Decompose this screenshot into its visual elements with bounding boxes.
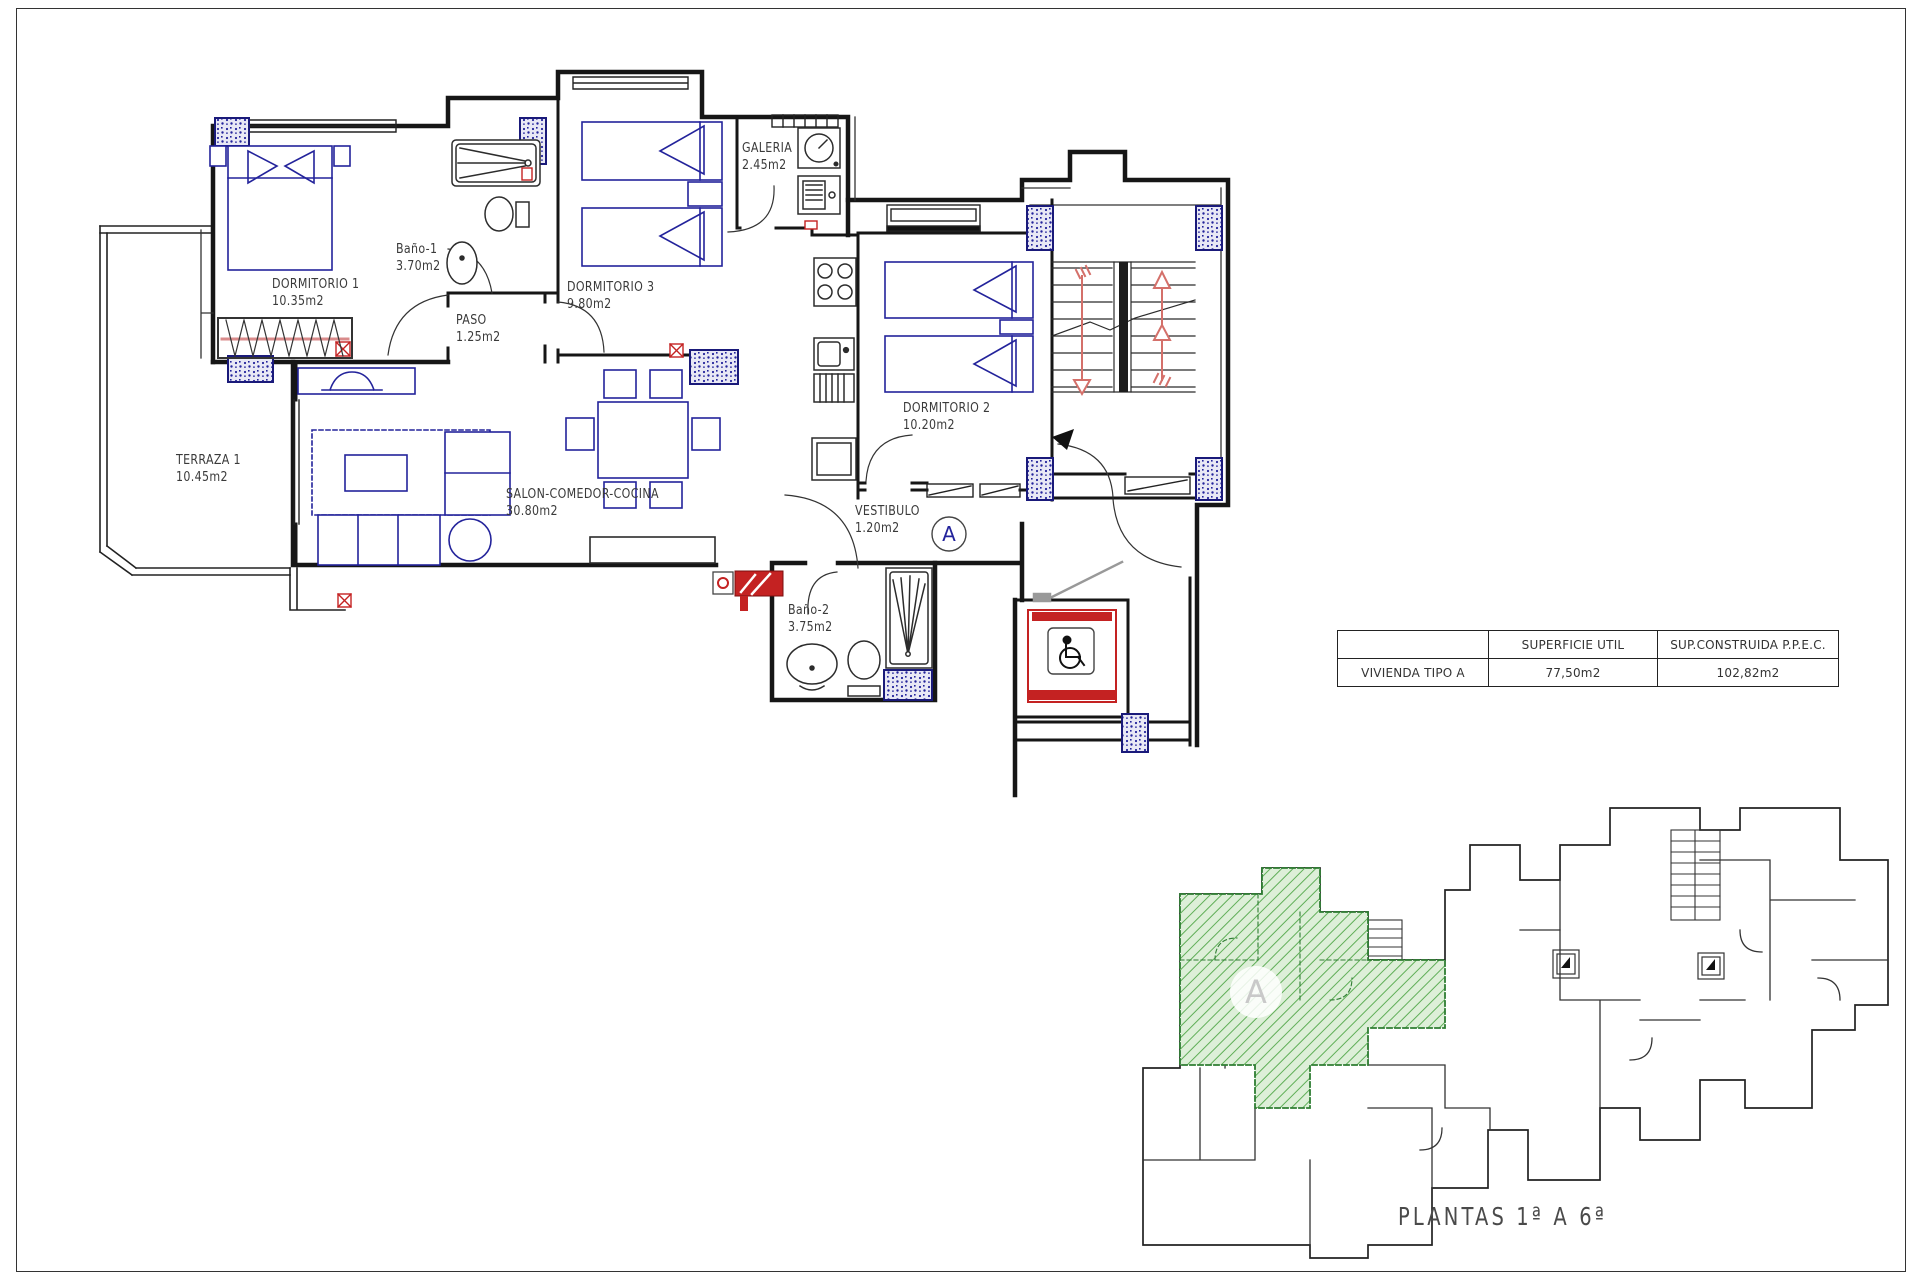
staircase (1052, 262, 1195, 394)
door-swings (388, 186, 1181, 614)
room-label-paso: PASO1.25m2 (456, 312, 500, 346)
pillar-icon (884, 670, 932, 700)
shower-bano2-icon (886, 568, 932, 668)
window-stair-hall (1125, 477, 1190, 494)
window-dormitorio3 (573, 77, 688, 89)
sink-bano1-icon (447, 242, 477, 284)
pillar-icon (1196, 458, 1222, 500)
room-label-galeria: GALERIA2.45m2 (742, 140, 792, 174)
summary-cell-sup-construida: 102,82m2 (1658, 659, 1839, 687)
room-label-bano1: Baño-13.70m2 (396, 241, 440, 275)
main-floor-plan: A (100, 72, 1228, 795)
toilet-bano2-icon (848, 641, 880, 696)
kitchen-counter-icon (590, 537, 715, 563)
summary-cell-superficie-util: 77,50m2 (1489, 659, 1658, 687)
room-label-dormitorio2: DORMITORIO 210.20m2 (903, 400, 990, 434)
kitchen-louver-icon (814, 374, 854, 402)
tv-console-icon (298, 368, 415, 394)
fridge-icon (812, 438, 856, 480)
floorplan-sheet: A (0, 0, 1920, 1280)
summary-table-data-row: VIVIENDA TIPO A 77,50m2 102,82m2 (1338, 659, 1839, 687)
room-label-dormitorio1: DORMITORIO 110.35m2 (272, 276, 359, 310)
pillar-icon (1196, 206, 1222, 250)
room-label-bano2: Baño-23.75m2 (788, 602, 832, 636)
window-vestibulo (927, 484, 1020, 497)
summary-table: SUPERFICIE UTIL SUP.CONSTRUIDA P.P.E.C. … (1337, 630, 1839, 687)
summary-cell-vivienda: VIVIENDA TIPO A (1338, 659, 1489, 687)
stair-arrow-up (1154, 272, 1170, 386)
summary-table-header-row: SUPERFICIE UTIL SUP.CONSTRUIDA P.P.E.C. (1338, 631, 1839, 659)
room-label-vestibulo: VESTIBULO1.20m2 (855, 503, 920, 537)
elevator-door-swing (1034, 562, 1122, 601)
pillar-icon (1027, 458, 1053, 500)
window-dormitorio1 (246, 120, 396, 132)
room-label-dormitorio3: DORMITORIO 39.80m2 (567, 279, 654, 313)
pillar-icon (1122, 714, 1148, 752)
stove-icon (814, 258, 856, 306)
side-table-icon (449, 519, 491, 561)
double-bed-icon (210, 146, 350, 270)
appliance-galeria-icon (798, 176, 840, 214)
pillar-icon (215, 118, 249, 146)
sink-bano2-icon (787, 644, 837, 690)
summary-header-sup-construida: SUP.CONSTRUIDA P.P.E.C. (1658, 631, 1839, 659)
room-label-salon: SALON-COMEDOR-COCINA30.80m2 (506, 486, 659, 520)
window-dormitorio2 (887, 205, 980, 231)
overview-plan: A (1143, 808, 1888, 1258)
kitchen-sink-icon (814, 338, 854, 370)
unit-marker-overview: A (1245, 973, 1267, 1011)
single-beds-dorm2-icon (885, 262, 1033, 392)
pillar-icon (228, 356, 273, 382)
pillar-icon (690, 350, 738, 384)
unit-marker-main-label: A (942, 522, 956, 546)
room-label-terraza1: TERRAZA 110.45m2 (176, 452, 241, 486)
elevator (1028, 562, 1122, 702)
washer-galeria-icon (798, 128, 840, 168)
overview-caption: PLANTAS 1ª A 6ª (1398, 1202, 1607, 1231)
summary-header-superficie-util: SUPERFICIE UTIL (1489, 631, 1658, 659)
pillar-icon (1027, 206, 1053, 250)
sofa-icon (312, 430, 510, 565)
summary-header-empty (1338, 631, 1489, 659)
unit-marker-main: A (932, 517, 966, 551)
toilet-bano1-icon (485, 197, 529, 231)
single-beds-dorm3-icon (582, 122, 722, 266)
